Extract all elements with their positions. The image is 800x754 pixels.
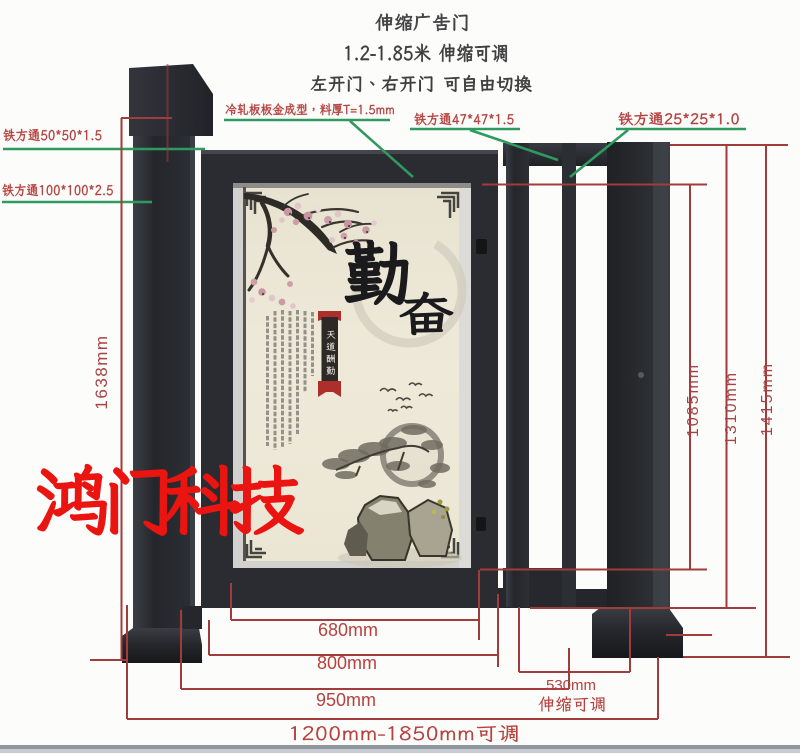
svg-text:950mm: 950mm (316, 690, 376, 710)
svg-text:1638mm: 1638mm (92, 334, 111, 409)
svg-text:530mm: 530mm (546, 677, 596, 694)
svg-text:1310mm: 1310mm (723, 371, 740, 445)
svg-text:800mm: 800mm (317, 653, 377, 673)
svg-text:1415mm: 1415mm (759, 362, 776, 436)
svg-text:680mm: 680mm (318, 620, 378, 640)
svg-text:1085mm: 1085mm (685, 363, 702, 437)
